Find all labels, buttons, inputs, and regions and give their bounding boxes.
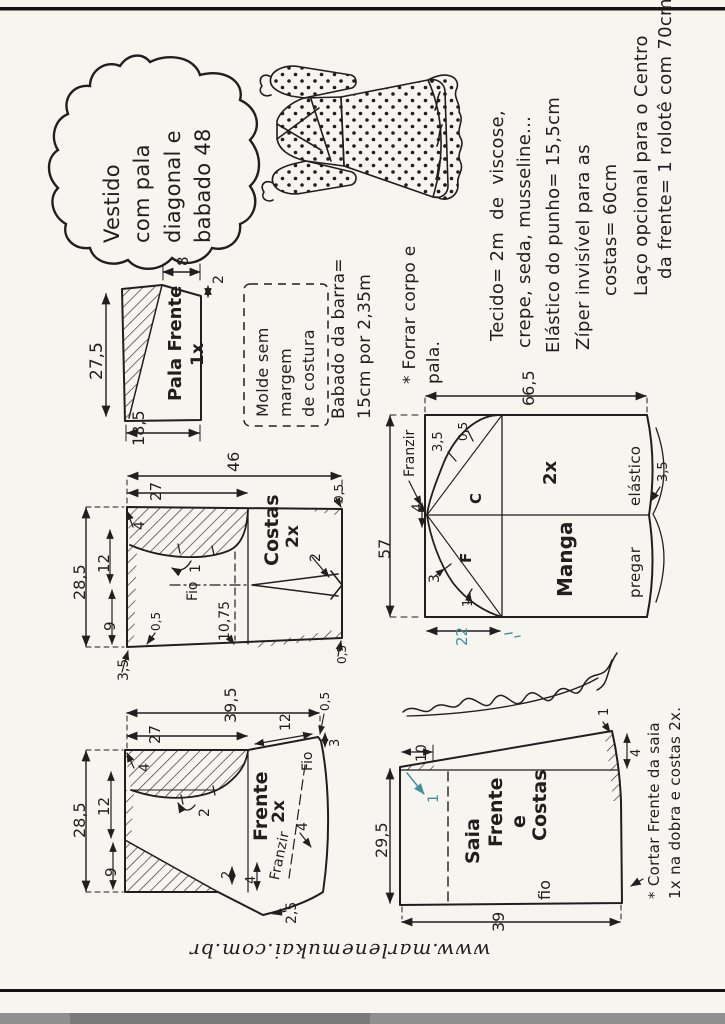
manga-dim-n2: 0,5 — [456, 422, 472, 441]
manga-elastic-upper: elástico — [626, 446, 646, 506]
saia-dim-waist: 10 — [413, 744, 431, 762]
saia-dim-width: 39 — [489, 912, 510, 932]
costas-dim-notch: 1 — [187, 564, 205, 573]
manga-qty: 2x — [539, 461, 562, 485]
costas-piece — [86, 476, 342, 672]
frente-dim-side: 9 — [102, 867, 122, 877]
costas-dim-side: 9 — [101, 621, 121, 631]
manga-dim-height: 57 — [375, 539, 396, 559]
dress-sketch — [260, 66, 462, 201]
frente-dim-shoulder: 4 — [136, 763, 154, 772]
costas-dim-dart: 2 — [307, 553, 325, 562]
materials-line-3: Elástico do punho= 15,5cm — [542, 97, 565, 353]
no-seam-note: Molde sem margem de costura — [251, 327, 321, 417]
skirt-cut-note-1: * Cortar Frente da saia — [645, 722, 665, 899]
costas-dim-corner: 3,5 — [115, 659, 133, 681]
pala-name: Pala Frente — [164, 286, 187, 401]
costas-seam-br: 0,5 — [335, 645, 351, 664]
costas-dim-width: 46 — [224, 452, 245, 472]
saia-grain-label: fio — [535, 880, 556, 900]
saia-name-1: Saia — [461, 818, 486, 864]
costas-seam-bl: 0,5 — [149, 612, 165, 631]
website-text: www.marlenemukai.com.br — [180, 938, 500, 964]
manga-cap-back-label: C — [467, 493, 487, 504]
materials-line-1: Tecido= 2m de viscose, — [486, 110, 509, 341]
frente-dim-flare: 2,5 — [283, 902, 301, 924]
pala-dim-left: 27,5 — [86, 342, 108, 380]
costas-grain-label: Fio — [184, 582, 202, 602]
manga-name: Manga — [552, 522, 578, 597]
signature-scribble — [403, 653, 617, 716]
manga-dim-width: 66,5 — [519, 370, 540, 406]
dress-skirt — [341, 80, 448, 198]
frente-dim-neck-rise: 0,5 — [318, 692, 334, 711]
manga-dim-center: 4 — [409, 503, 427, 512]
saia-corner-notch: 1 — [597, 708, 614, 716]
frente-dim-height: 28,5 — [70, 802, 91, 838]
saia-dim-height: 29,5 — [372, 822, 393, 858]
manga-dim-n3: 3 — [426, 574, 444, 583]
costas-dim-shoulder: 4 — [131, 521, 149, 530]
frente-dim-hem1: 2 — [220, 871, 237, 879]
frente-dim-width: 39,5 — [221, 687, 242, 723]
manga-dim-cuff: 22 — [453, 627, 473, 646]
manga-dim-cuff-ease: 3,5 — [656, 461, 673, 482]
frente-qty: 2x — [268, 800, 290, 823]
frente-dim-neck-drop: 3 — [328, 739, 345, 747]
frente-grain-label: Fio — [299, 752, 317, 772]
skirt-cut-note-2: 1x na dobra e costas 2x. — [666, 707, 686, 899]
frente-dim-armhole: 12 — [95, 797, 115, 816]
costas-seam-tr: 0,5 — [332, 484, 348, 503]
pala-dim-bottom: 18,5 — [129, 410, 150, 446]
saia-dim-drop: 1 — [425, 794, 443, 803]
costas-dim-partial: 27 — [147, 482, 167, 501]
dress-sleeve-upper — [270, 66, 356, 98]
saia-name-4: Costas — [528, 769, 553, 841]
manga-gather-label: Franzir — [401, 430, 419, 477]
costas-qty: 2x — [282, 525, 304, 548]
title-cloud-text: Vestido com pala diagonal e babado 48 — [97, 128, 219, 243]
manga-elastic-lower: pregar — [626, 547, 646, 598]
materials-line-5: costas= 60cm — [599, 164, 622, 297]
costas-dim-height: 28,5 — [70, 564, 91, 600]
materials-line-6: Laço opcional para o Centro — [630, 35, 653, 296]
frente-dim-partial: 27 — [146, 725, 166, 744]
sewing-pattern-page: Vestido com pala diagonal e babado 48 Te… — [0, 0, 725, 1024]
manga-dim-n4: 1 — [461, 599, 478, 607]
saia-name-2: Frente — [484, 777, 509, 847]
materials-line-2: crepe, seda, musseline... — [513, 116, 536, 348]
frente-dim-hem2: 4 — [244, 876, 261, 884]
manga-cap-front-label: F — [457, 553, 477, 563]
materials-line-7: da frente= 1 rolotê com 70cm — [654, 0, 677, 279]
frente-dim-neck: 12 — [277, 713, 295, 731]
frente-dim-dart: 2 — [196, 808, 214, 817]
costas-name: Costas — [260, 494, 285, 566]
costas-dim-armhole: 12 — [95, 554, 115, 573]
frente-dim-gather: 4 — [294, 822, 312, 831]
pala-dim-corner: 2 — [210, 275, 228, 284]
costas-dim-hem: 10,75 — [216, 601, 234, 641]
manga-dim-n1: 3,5 — [431, 431, 448, 452]
lining-note: * Forrar corpo e pala. — [399, 245, 447, 384]
pala-qty: 1x — [187, 343, 209, 366]
hem-ruffle-note: Babado da barra= 15cm por 2,35m — [327, 258, 378, 419]
saia-dim-corner: 4 — [629, 749, 646, 757]
materials-line-4: Zíper invisível para as — [572, 144, 595, 350]
pala-dim-top: 8 — [174, 256, 194, 266]
